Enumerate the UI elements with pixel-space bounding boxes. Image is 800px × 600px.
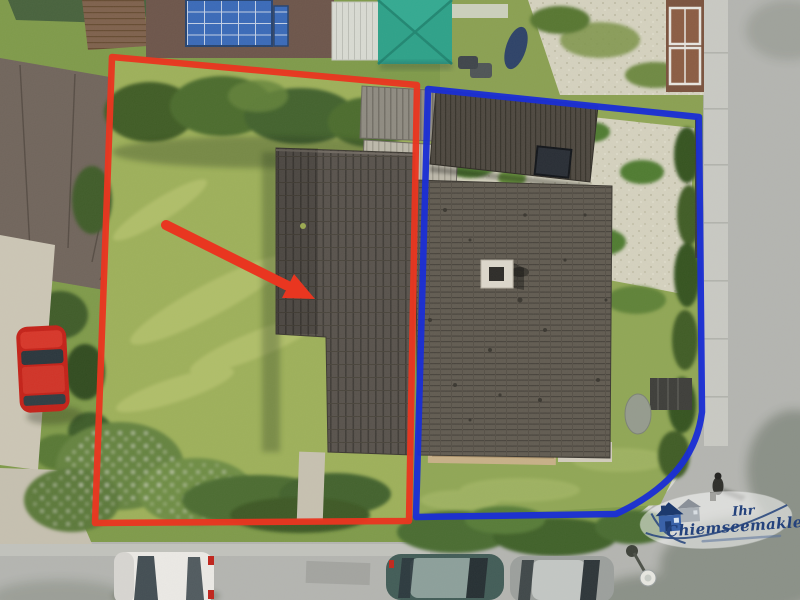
aerial-property-photo: Ihr Chiemseemakler xyxy=(0,0,800,600)
